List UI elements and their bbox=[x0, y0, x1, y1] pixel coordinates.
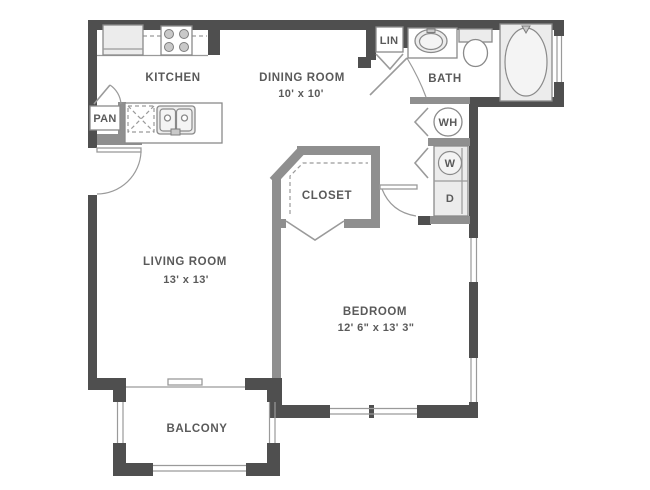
burner-icon bbox=[165, 30, 174, 39]
bathtub-basin bbox=[505, 28, 547, 96]
wall-living-bedroom-partition bbox=[272, 222, 281, 378]
sink-faucet-icon bbox=[171, 129, 180, 135]
bedroom-door-swing bbox=[382, 189, 416, 216]
label-living-dims: 13' x 13' bbox=[163, 274, 209, 286]
label-balcony: BALCONY bbox=[166, 423, 227, 435]
label-kitchen: KITCHEN bbox=[145, 72, 200, 84]
label-bedroom-dims: 12' 6" x 13' 3" bbox=[338, 322, 415, 334]
bath-door-swing bbox=[407, 58, 426, 97]
bath-door-leaf bbox=[370, 58, 407, 95]
bedroom-door-leaf bbox=[380, 185, 417, 189]
label-linen: LIN bbox=[380, 35, 399, 47]
wall-right-upper bbox=[469, 97, 478, 238]
wall-wh-bottom bbox=[428, 138, 470, 146]
pantry-door-swing bbox=[110, 85, 121, 104]
entry-door-leaf bbox=[97, 148, 141, 152]
wd-door bbox=[415, 148, 428, 178]
burner-icon bbox=[165, 43, 174, 52]
kitchen-fixtures bbox=[90, 25, 222, 143]
bath-sink-faucet-icon bbox=[427, 29, 435, 33]
windows bbox=[126, 36, 562, 414]
wall-bath-right-upper bbox=[554, 20, 564, 36]
wall-wd-bottom bbox=[430, 216, 470, 224]
label-bedroom: BEDROOM bbox=[343, 306, 407, 318]
balcony-corner-bottom-right bbox=[267, 443, 280, 476]
closet-doors bbox=[286, 221, 344, 240]
balcony-corner-top-left bbox=[113, 388, 126, 402]
wall-bath-bottom-inner bbox=[410, 97, 470, 104]
balcony-wall-bottom-left bbox=[113, 463, 153, 476]
label-dining-room: DINING ROOM bbox=[259, 72, 345, 84]
closet-wall-bottom-left bbox=[272, 219, 286, 228]
entry-door-swing bbox=[97, 152, 141, 194]
label-dryer: D bbox=[446, 193, 454, 205]
wall-linen-corner bbox=[358, 57, 371, 68]
floor-plan: KITCHEN DINING ROOM 10' x 10' BATH PAN L… bbox=[0, 0, 650, 490]
sink-drain-icon bbox=[182, 115, 188, 121]
wall-bedroom-door-stub bbox=[418, 216, 431, 225]
closet-wall-top bbox=[297, 146, 380, 155]
closet-wall-right bbox=[371, 146, 380, 228]
window-mullion bbox=[369, 405, 374, 418]
wall-left-lower bbox=[88, 195, 97, 390]
closet-shelf-line bbox=[290, 163, 368, 214]
wall-bedroom-bottom-right bbox=[417, 405, 478, 418]
label-closet: CLOSET bbox=[302, 190, 352, 202]
wall-linen-left bbox=[366, 28, 376, 60]
closet-wall-diagonal bbox=[273, 150, 302, 181]
sink-drain-icon bbox=[165, 115, 171, 121]
bath-sink-basin bbox=[420, 34, 443, 50]
toilet-bowl bbox=[464, 40, 488, 67]
label-water-heater: WH bbox=[439, 117, 458, 129]
wall-right-middle bbox=[469, 282, 478, 358]
label-living-room: LIVING ROOM bbox=[143, 256, 227, 268]
label-bath: BATH bbox=[428, 73, 462, 85]
label-pantry: PAN bbox=[93, 113, 116, 125]
floor-plan-page: KITCHEN DINING ROOM 10' x 10' BATH PAN L… bbox=[0, 0, 650, 490]
balcony-corner-top-right bbox=[267, 388, 280, 402]
label-washer: W bbox=[445, 158, 456, 170]
wh-door bbox=[415, 108, 428, 136]
wall-kitchen-stub bbox=[208, 23, 220, 55]
refrigerator bbox=[103, 25, 143, 55]
label-dining-dims: 10' x 10' bbox=[278, 88, 324, 100]
burner-icon bbox=[180, 30, 189, 39]
closet-wall-bottom-right bbox=[344, 219, 380, 228]
sliding-door-panel bbox=[168, 379, 202, 385]
burner-icon bbox=[180, 43, 189, 52]
wall-bedroom-bottom-left bbox=[282, 405, 330, 418]
